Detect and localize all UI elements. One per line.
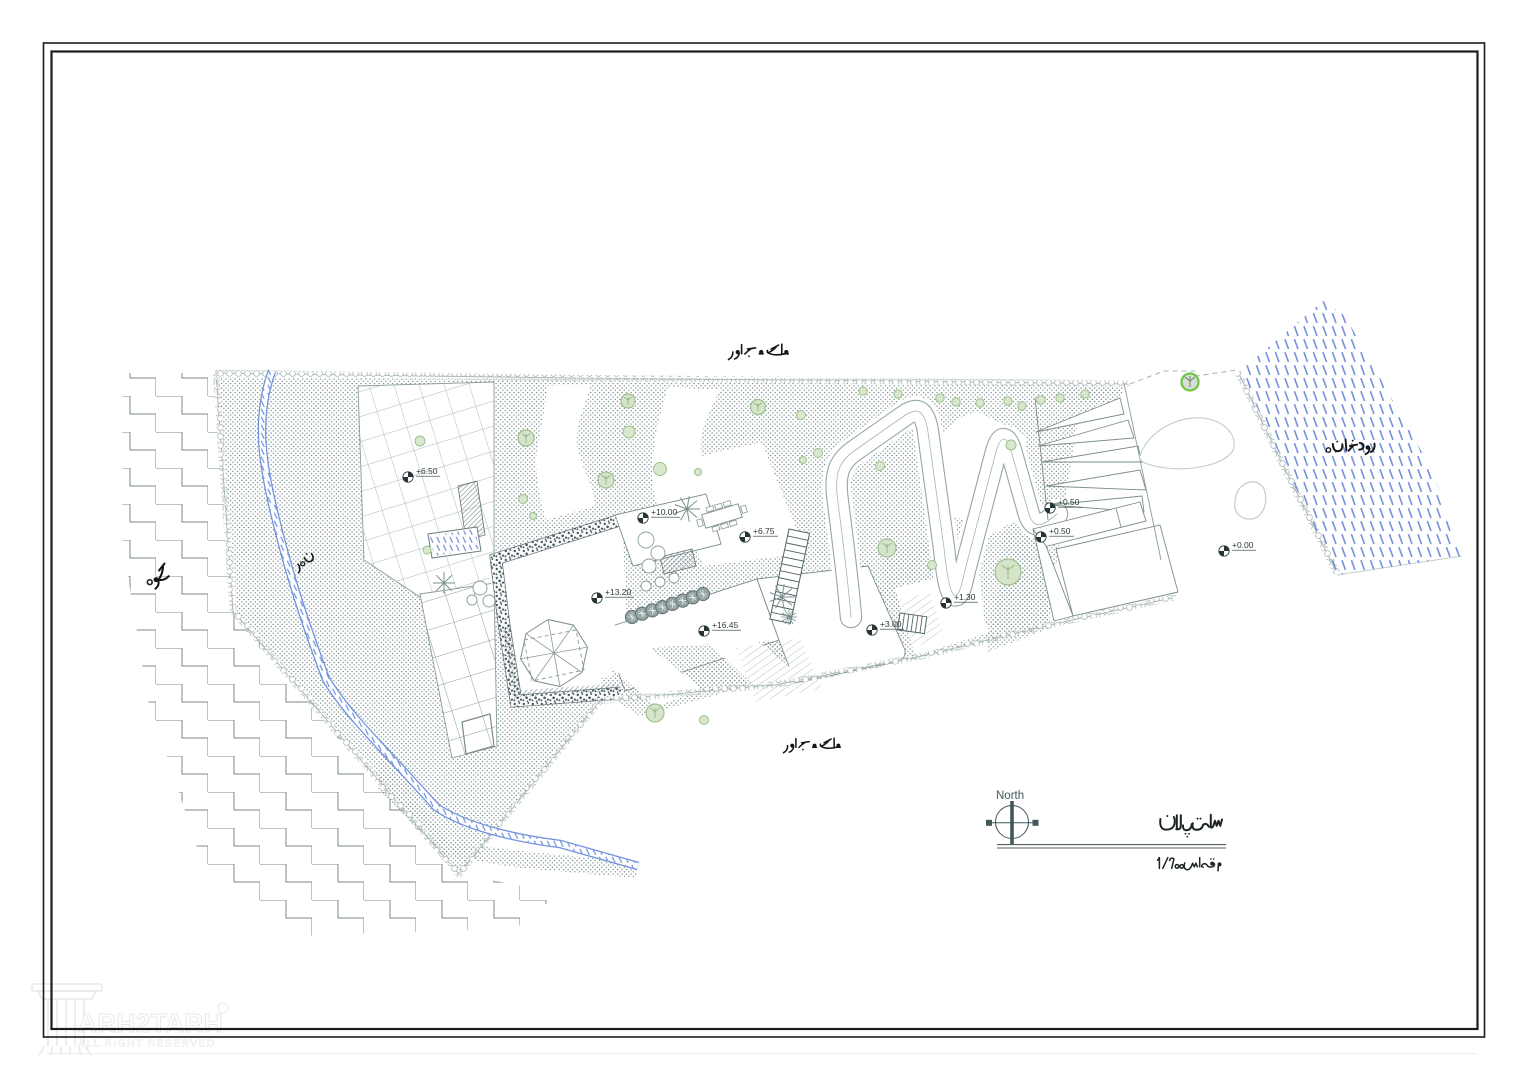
svg-text:+3.00: +3.00 bbox=[880, 619, 902, 629]
svg-text:+0.50: +0.50 bbox=[1049, 526, 1071, 536]
svg-text:ALL RIGHT RESERVED: ALL RIGHT RESERVED bbox=[78, 1038, 216, 1050]
svg-text:+0.00: +0.00 bbox=[1232, 540, 1254, 550]
svg-text:+0.50: +0.50 bbox=[1058, 497, 1080, 507]
svg-text:ARH2TARH: ARH2TARH bbox=[78, 1008, 223, 1038]
svg-text:North: North bbox=[996, 790, 1024, 802]
svg-text:+16.45: +16.45 bbox=[712, 620, 739, 630]
svg-text:+13.20: +13.20 bbox=[605, 587, 632, 597]
svg-text:+1.30: +1.30 bbox=[954, 592, 976, 602]
svg-text:+10.00: +10.00 bbox=[651, 507, 678, 517]
svg-text:+6.75: +6.75 bbox=[753, 526, 775, 536]
svg-text:+6.50: +6.50 bbox=[416, 466, 438, 476]
